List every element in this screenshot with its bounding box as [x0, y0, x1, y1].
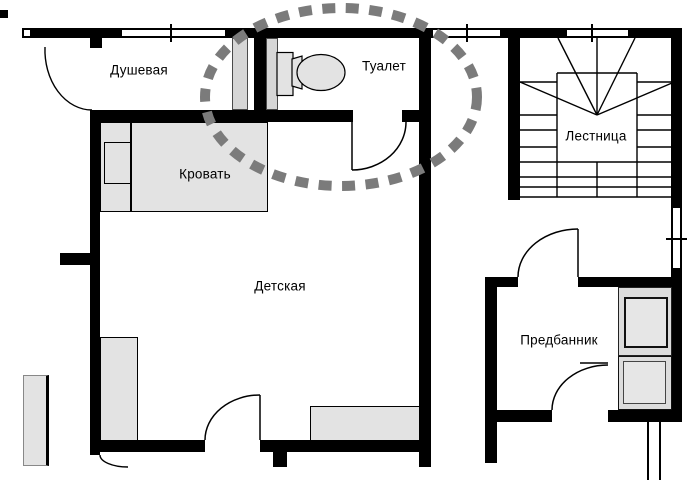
anteroom-bottom-door-arc — [552, 363, 608, 410]
room-label-bed: Кровать — [179, 167, 231, 181]
bottom-edge-door-arc — [100, 455, 128, 467]
room-label-toilet: Туалет — [362, 59, 406, 73]
room-label-shower: Душевая — [110, 63, 168, 77]
toilet-tank — [277, 53, 293, 96]
nursery-door-arc — [205, 395, 260, 440]
toilet-door-arc — [352, 122, 406, 170]
floor-plan: Душевая Туалет Кровать Детская Лестница … — [0, 0, 700, 480]
room-label-anteroom: Предбанник — [520, 333, 598, 347]
anteroom-top-door-arc — [518, 229, 578, 277]
toilet-bowl — [297, 55, 345, 91]
room-label-nursery: Детская — [254, 279, 305, 293]
room-label-staircase: Лестница — [565, 129, 626, 143]
staircase — [518, 38, 672, 197]
toilet-icon — [277, 53, 345, 96]
shower-door-arc — [45, 47, 92, 110]
highlight-ellipse — [205, 8, 477, 186]
plan-linework — [0, 0, 700, 480]
